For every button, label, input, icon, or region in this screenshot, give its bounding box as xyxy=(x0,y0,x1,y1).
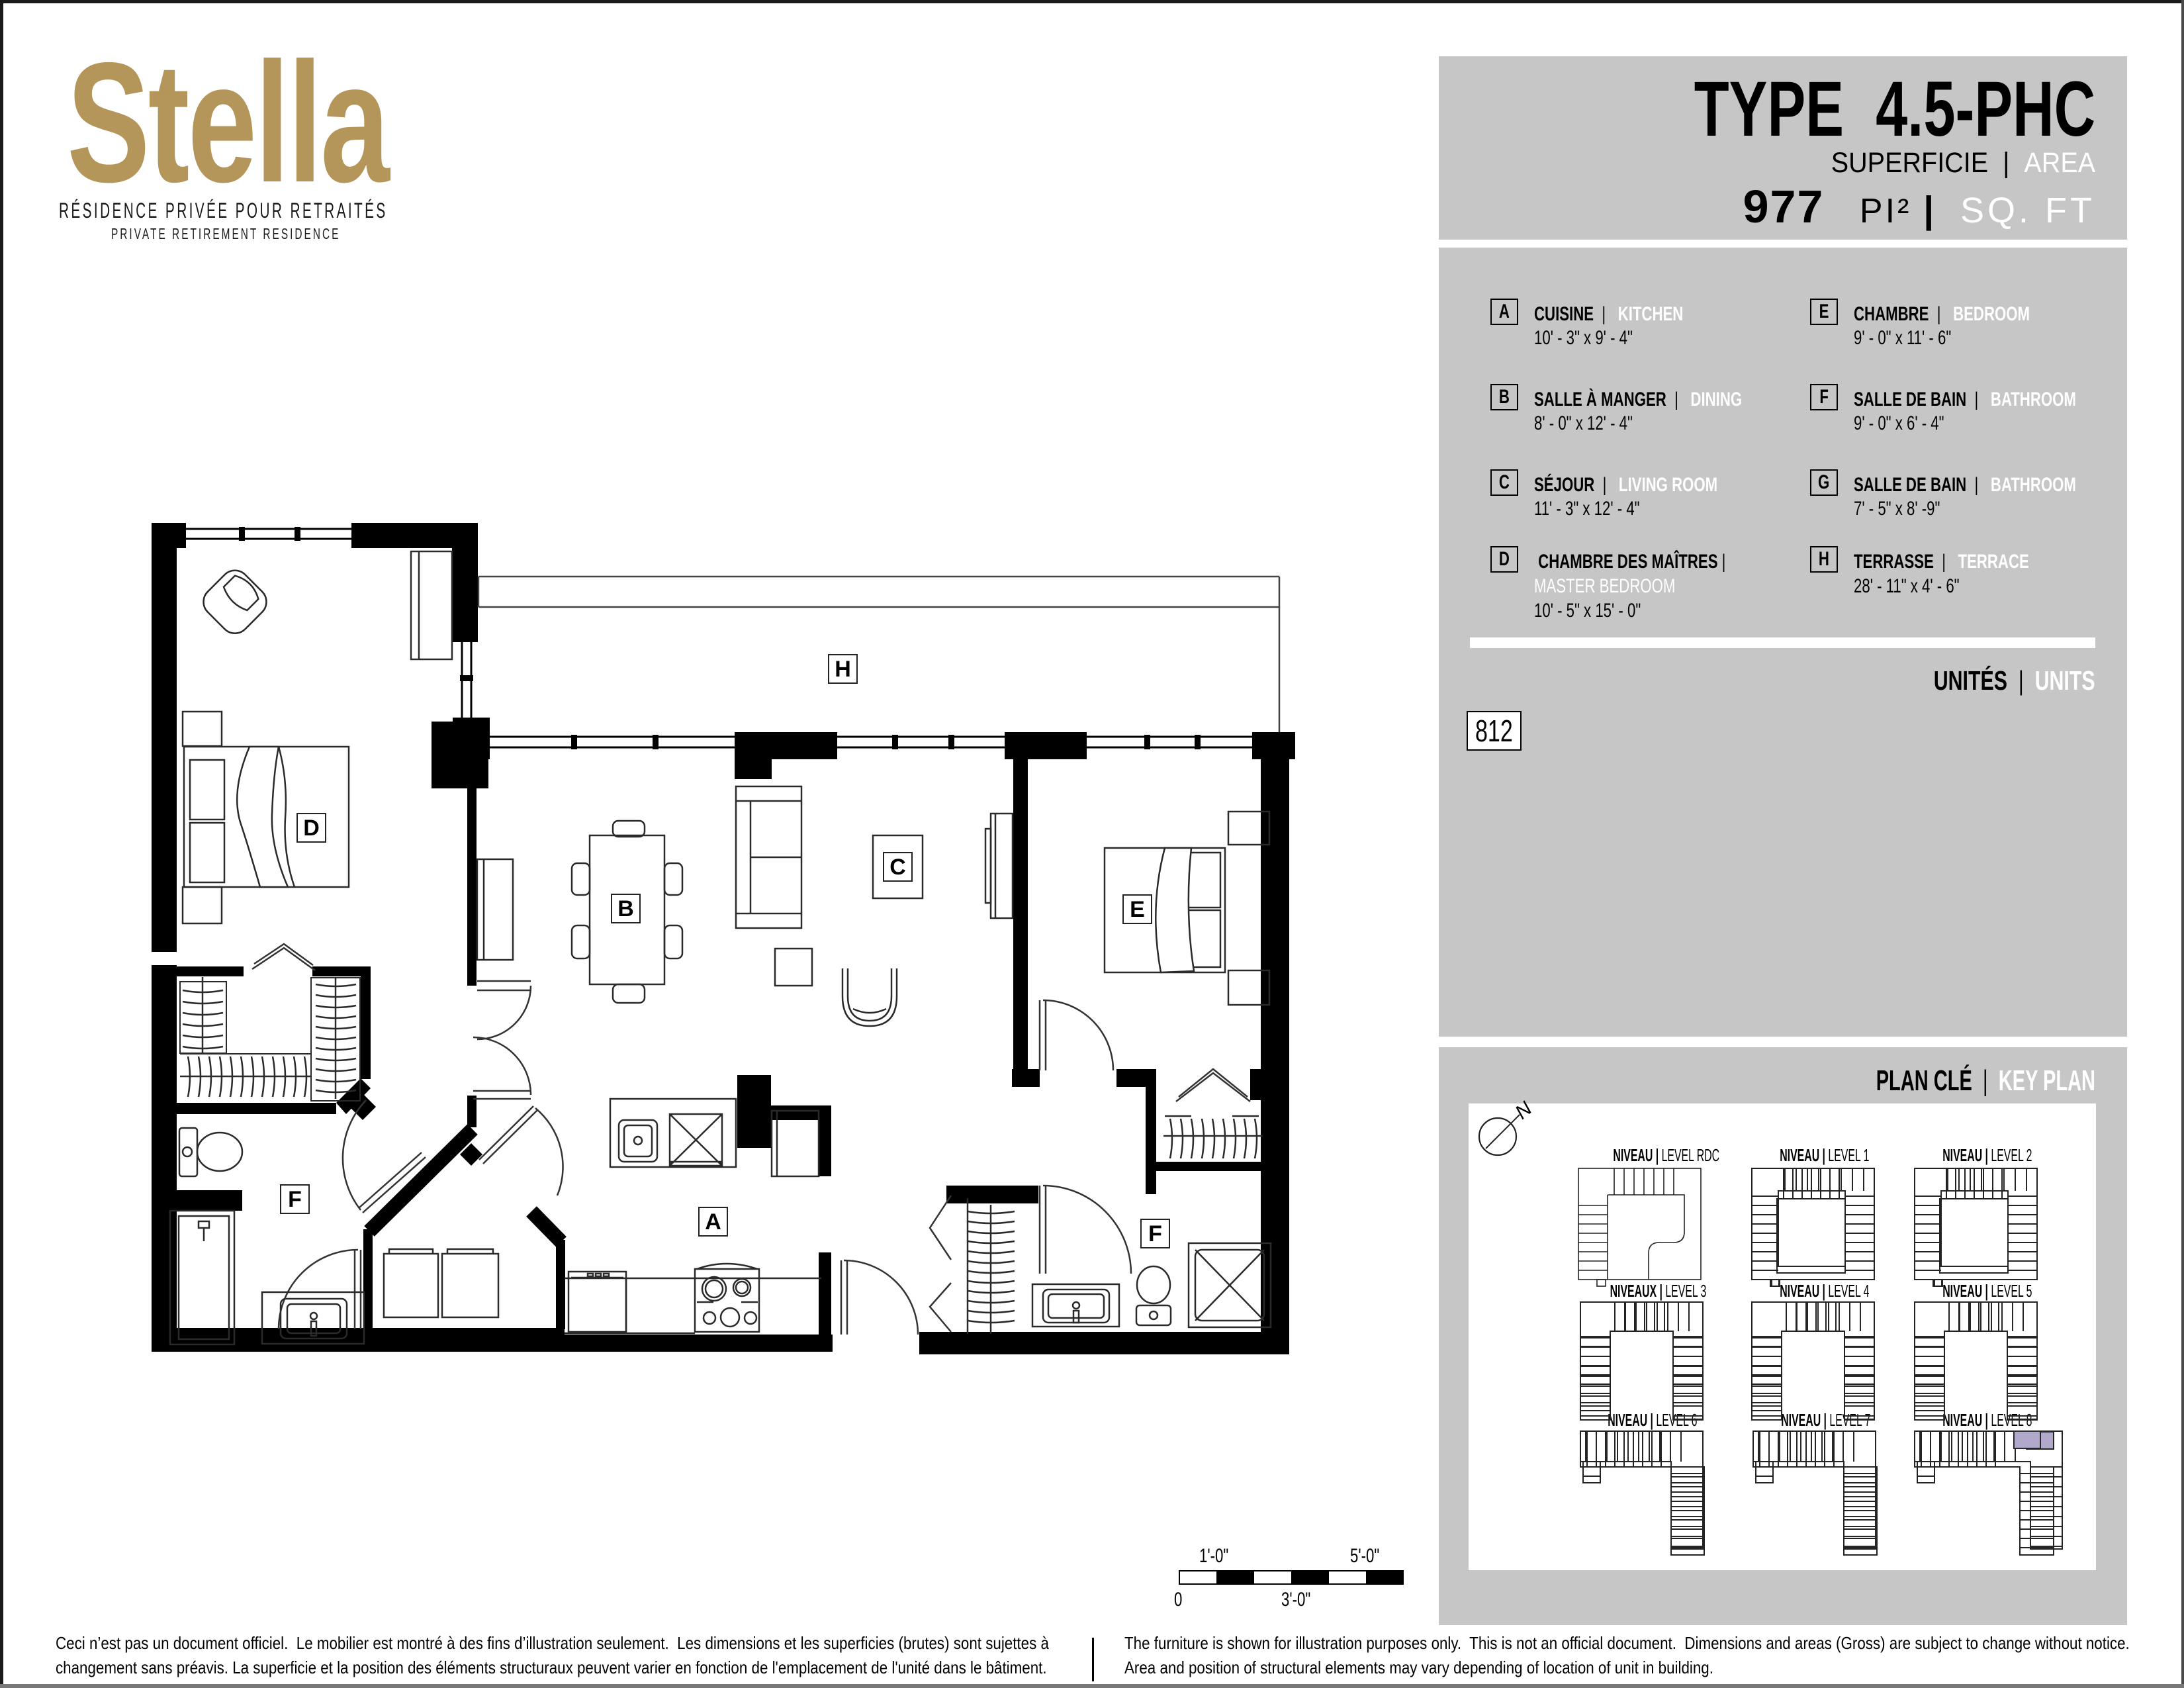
svg-text:F: F xyxy=(288,1187,302,1212)
svg-text:F: F xyxy=(1148,1221,1162,1246)
svg-text:H: H xyxy=(835,657,851,682)
svg-text:C: C xyxy=(889,855,906,880)
svg-text:E: E xyxy=(1130,897,1145,922)
svg-text:A: A xyxy=(705,1209,721,1235)
svg-text:D: D xyxy=(303,816,320,841)
svg-text:B: B xyxy=(617,896,634,921)
